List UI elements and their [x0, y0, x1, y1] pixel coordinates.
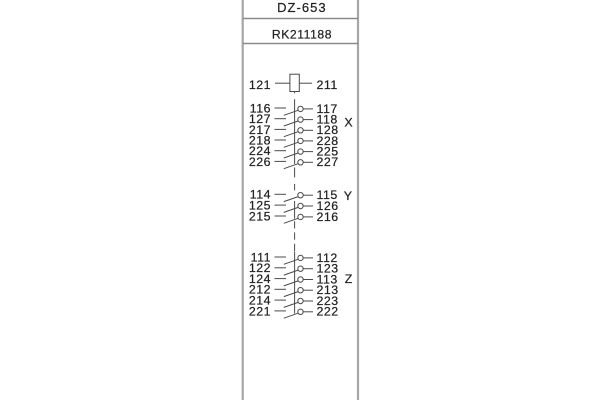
svg-text:215: 215	[249, 209, 271, 223]
svg-text:DZ-653: DZ-653	[277, 0, 327, 15]
svg-text:222: 222	[317, 305, 339, 319]
svg-text:216: 216	[317, 210, 339, 224]
svg-text:Y: Y	[344, 189, 353, 203]
svg-text:Z: Z	[345, 272, 353, 286]
svg-text:RK211188: RK211188	[272, 28, 332, 42]
svg-text:221: 221	[249, 304, 271, 318]
svg-text:211: 211	[317, 78, 338, 92]
svg-text:227: 227	[317, 155, 339, 169]
svg-text:X: X	[344, 116, 353, 130]
svg-text:121: 121	[249, 78, 271, 92]
svg-text:226: 226	[249, 155, 271, 169]
